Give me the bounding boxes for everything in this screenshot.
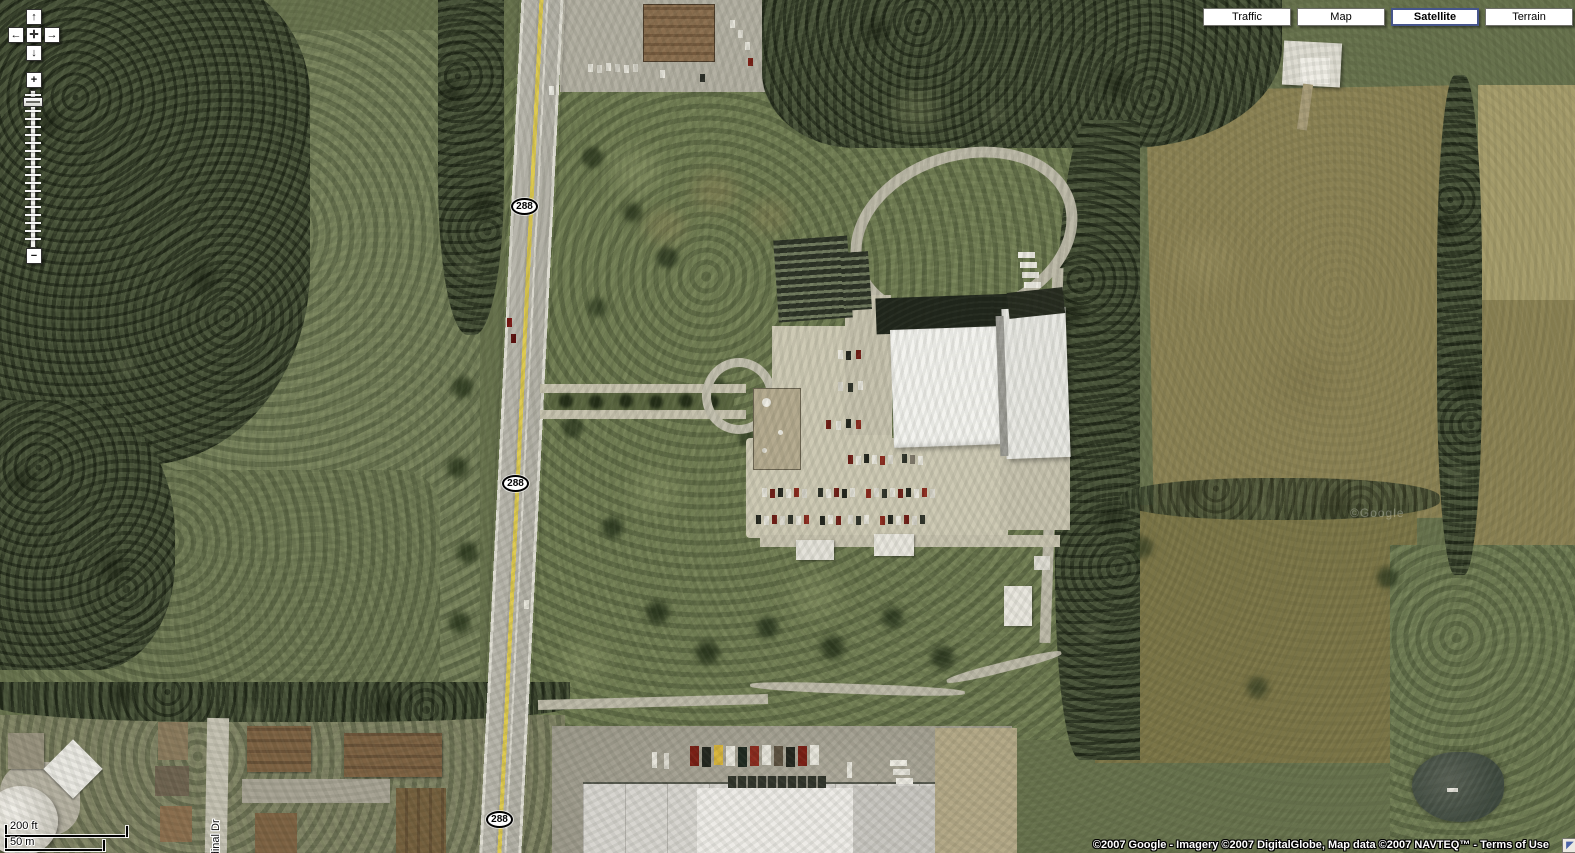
house-5 <box>255 813 297 853</box>
farm-field-large <box>1146 85 1465 522</box>
yard-white-trucks <box>890 760 907 766</box>
pond-dock <box>1447 788 1458 792</box>
arrow-right-icon: → <box>47 29 58 41</box>
tan-building <box>753 388 801 470</box>
industrial-roof-bright <box>697 788 853 853</box>
tent-1 <box>796 540 834 560</box>
plus-icon: + <box>31 74 37 86</box>
pan-right-button[interactable]: → <box>44 27 60 43</box>
treeline-highway-west <box>438 0 504 335</box>
house-4 <box>160 806 192 842</box>
zoom-slider-track[interactable] <box>30 90 36 248</box>
top-building <box>643 4 715 62</box>
zoom-out-button[interactable]: − <box>26 248 42 264</box>
view-button-traffic[interactable]: Traffic <box>1203 8 1291 26</box>
scale-meters-label: 50 m <box>10 836 34 848</box>
apartment-parking <box>242 779 390 803</box>
rural-house-wing <box>1300 58 1330 84</box>
arrow-down-icon: ↓ <box>31 47 37 59</box>
yard-trucks <box>0 0 9 20</box>
center-crosshair-icon: ✛ <box>29 29 38 41</box>
farm-field-lower <box>1095 505 1417 763</box>
overview-arrow-icon: ◤ <box>1566 840 1574 851</box>
route-shield-288-mid: 288 <box>502 475 529 492</box>
dock-trailers <box>728 776 826 788</box>
woods-topleft <box>0 0 310 465</box>
house-2 <box>158 722 188 760</box>
overview-map-toggle-button[interactable]: ◤ <box>1562 838 1575 853</box>
white-shed <box>1004 586 1032 626</box>
house-1 <box>8 733 44 769</box>
industrial-roof-right <box>853 786 935 853</box>
scale-bar-meters-line <box>5 849 105 851</box>
google-maps-viewport: 288 288 288 Cardinal Dr ©Google ↑ ← ✛ → … <box>0 0 1575 853</box>
pan-center-button[interactable]: ✛ <box>26 27 42 43</box>
main-building-east-wing <box>1001 307 1070 459</box>
scale-bar-meters-end-tick <box>103 840 105 851</box>
route-shield-288-top: 288 <box>511 198 538 215</box>
street-label-cardinal-dr: Cardinal Dr <box>210 819 222 853</box>
pan-left-button[interactable]: ← <box>8 27 24 43</box>
tent-2 <box>874 534 914 556</box>
main-building-white-roof <box>890 326 1004 448</box>
industrial-dirt <box>935 728 1017 853</box>
view-button-map[interactable]: Map <box>1297 8 1385 26</box>
scale-bar: 200 ft 50 m <box>5 819 145 853</box>
imagery-watermark: ©Google <box>1350 506 1405 520</box>
map-canvas[interactable]: 288 288 288 Cardinal Dr ©Google <box>0 0 1575 853</box>
view-button-satellite[interactable]: Satellite <box>1391 8 1479 26</box>
apartment-1 <box>247 726 311 772</box>
terms-of-use-link[interactable]: Terms of Use <box>1480 839 1549 851</box>
house-3 <box>155 766 189 796</box>
scale-bar-left-tick <box>5 825 7 851</box>
minus-icon: − <box>31 250 37 262</box>
loop-trucks <box>1018 252 1035 258</box>
carport-array-2 <box>840 251 872 311</box>
scale-feet-label: 200 ft <box>10 820 38 832</box>
route-shield-288-bottom: 288 <box>486 811 513 828</box>
apartment-3 <box>396 788 446 853</box>
zoom-slider-handle[interactable] <box>23 97 43 107</box>
view-button-terrain[interactable]: Terrain <box>1485 8 1573 26</box>
pan-down-button[interactable]: ↓ <box>26 45 42 61</box>
white-shed-2 <box>1034 556 1050 570</box>
farm-field-topright <box>1478 85 1575 307</box>
pan-up-button[interactable]: ↑ <box>26 9 42 25</box>
copyright-text: ©2007 Google - Imagery ©2007 DigitalGlob… <box>1093 839 1480 851</box>
zoom-in-button[interactable]: + <box>26 72 42 88</box>
pond <box>1412 752 1504 822</box>
arrow-up-icon: ↑ <box>31 11 37 23</box>
treeline-fields <box>1437 75 1482 575</box>
scale-bar-feet-end-tick <box>126 826 128 837</box>
apartment-2 <box>344 733 442 777</box>
attribution: ©2007 Google - Imagery ©2007 DigitalGlob… <box>1093 839 1549 851</box>
arrow-left-icon: ← <box>11 29 22 41</box>
